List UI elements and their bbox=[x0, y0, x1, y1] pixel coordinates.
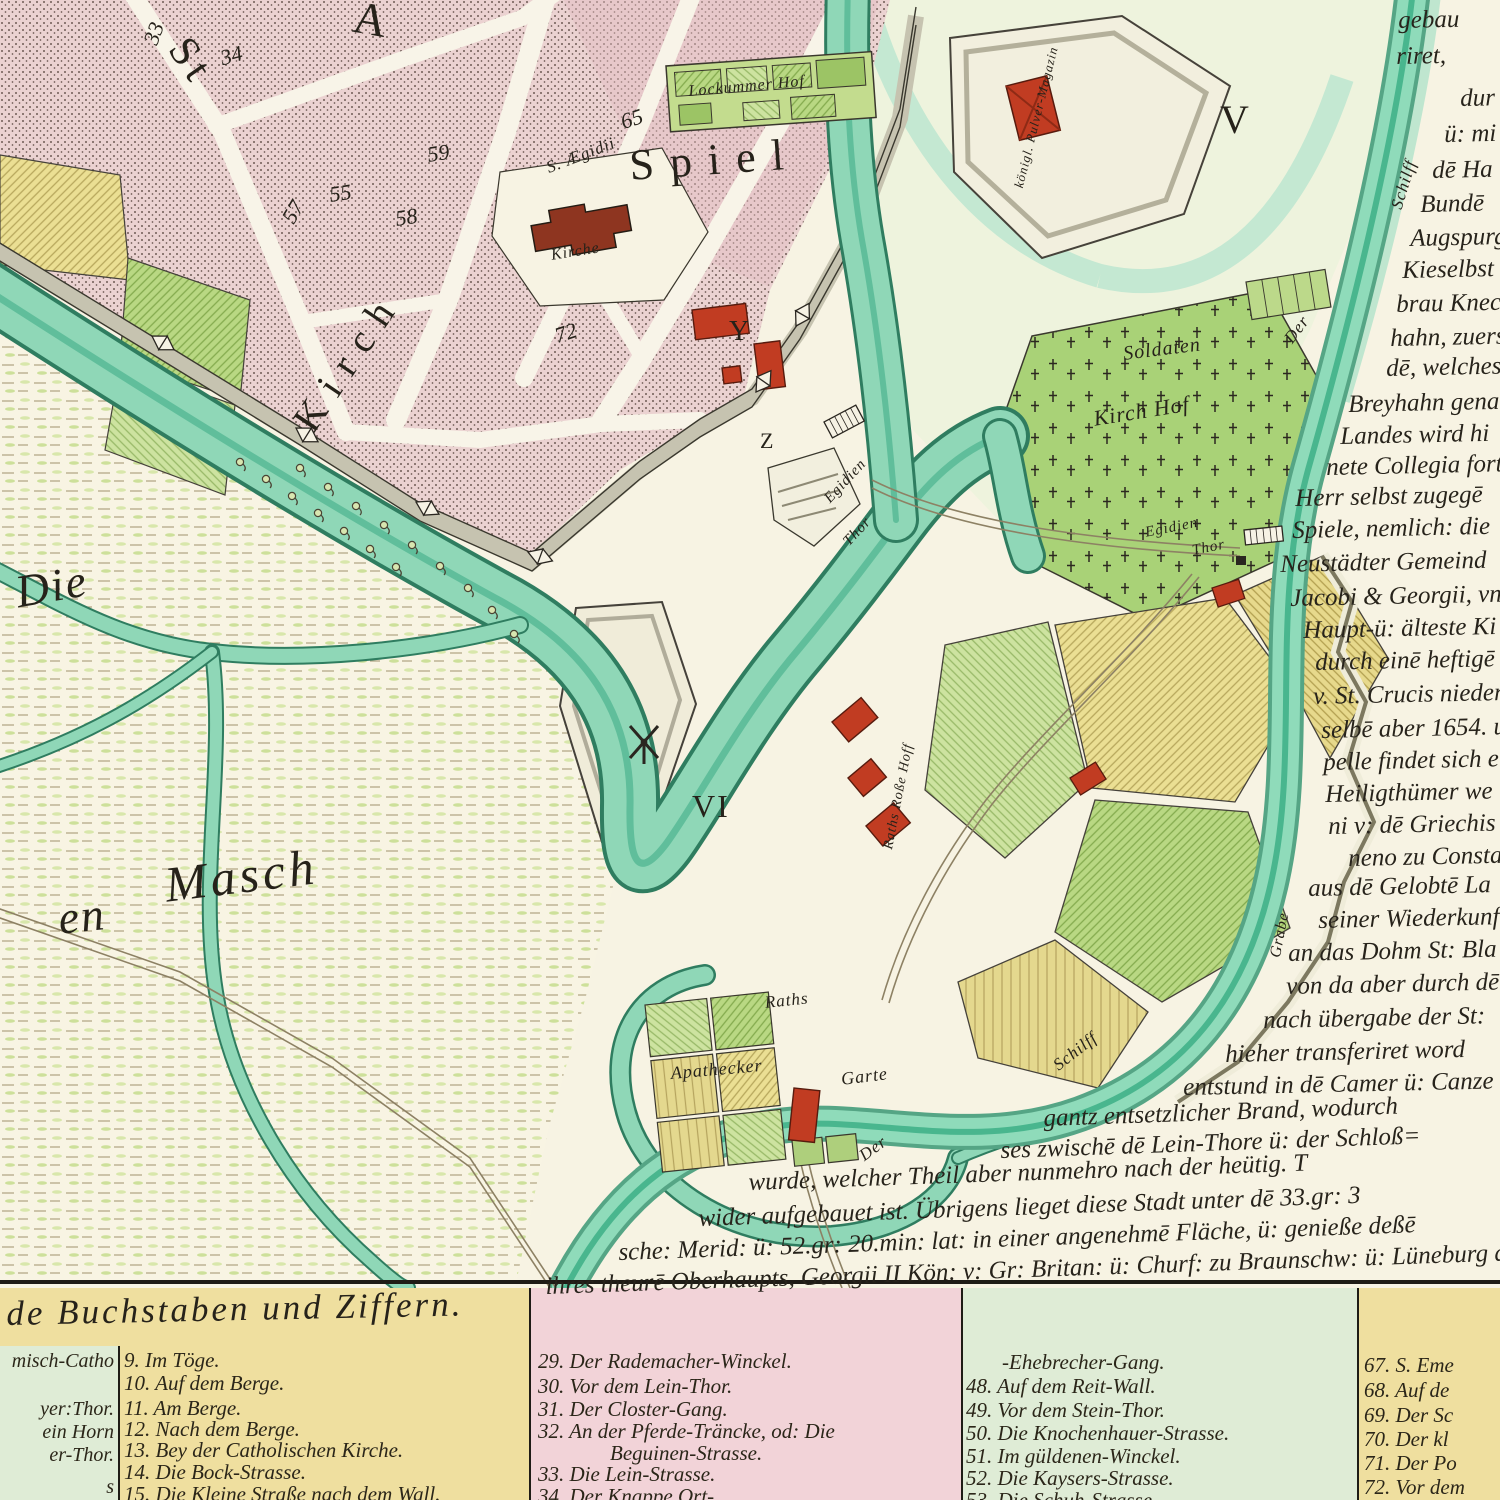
margin-text-line: neno zu Constanti bbox=[1348, 842, 1500, 871]
margin-text-line: riret, bbox=[1396, 43, 1446, 69]
legend-entry: -Ehebrecher-Gang. bbox=[1002, 1352, 1165, 1373]
margin-text-line: selbē aber 1654. u bbox=[1321, 714, 1500, 743]
margin-text-line: Haupt-ü: älteste Ki bbox=[1303, 614, 1497, 643]
legend-entry: 14. Die Bock-Strasse. bbox=[124, 1462, 306, 1483]
legend-entry: 52. Die Kaysers-Strasse. bbox=[966, 1468, 1174, 1489]
margin-text-line: Jacobi & Georgii, vn bbox=[1290, 582, 1500, 611]
legend-entry: 69. Der Sc bbox=[1364, 1405, 1453, 1426]
bastion-numeral-v: V bbox=[1220, 100, 1251, 140]
legend-entry: 72. Vor dem bbox=[1364, 1477, 1465, 1498]
margin-text-line: dē, welches, ih bbox=[1386, 353, 1500, 381]
margin-text-line: ü: mi bbox=[1444, 121, 1497, 147]
legend-entry: 32. An der Pferde-Träncke, od: Die bbox=[538, 1421, 835, 1442]
meadow-label-die: Die bbox=[12, 557, 91, 615]
bridge-icon-outer bbox=[1244, 526, 1283, 545]
legend-entry: 67. S. Eme bbox=[1364, 1355, 1454, 1376]
margin-text-line: dur bbox=[1460, 85, 1495, 111]
margin-text-line: nete Collegia forti bbox=[1326, 451, 1500, 480]
margin-text-line: gebau bbox=[1398, 7, 1460, 33]
legend-entry: yer:Thor. bbox=[40, 1399, 114, 1419]
margin-text-line: ni v: dē Griechis bbox=[1328, 810, 1496, 838]
legend-entry: er-Thor. bbox=[49, 1445, 114, 1465]
legend-entry: misch-Catho bbox=[12, 1351, 114, 1371]
margin-text-line: Breyhahn gena bbox=[1348, 389, 1500, 417]
legend-divider bbox=[118, 1346, 120, 1500]
legend-entry: Beguinen-Strasse. bbox=[610, 1443, 762, 1464]
street-number-55: 55 bbox=[328, 181, 353, 206]
bastion-numeral-vi: VI bbox=[692, 790, 730, 822]
margin-text-line: seiner Wiederkunft bbox=[1318, 904, 1500, 933]
margin-text-line: hahn, zuerst bbox=[1390, 323, 1500, 351]
margin-text-line: Landes wird hi bbox=[1340, 421, 1490, 449]
margin-text-line: Kieselbst is bbox=[1402, 256, 1500, 283]
margin-text-line: v. St. Crucis nieder bbox=[1313, 680, 1500, 709]
margin-text-line: nach übergabe der St: bbox=[1263, 1003, 1485, 1033]
street-number-59: 59 bbox=[426, 141, 451, 166]
building-letter-z: Z bbox=[760, 430, 773, 452]
legend-entry: 34. Der Knappe Ort- bbox=[538, 1486, 714, 1500]
legend-divider bbox=[529, 1288, 531, 1500]
legend-entry: 9. Im Töge. bbox=[124, 1350, 220, 1371]
legend-entry: 71. Der Po bbox=[1364, 1453, 1457, 1474]
margin-text-line: Spiele, nemlich: die bbox=[1292, 514, 1490, 543]
legend-entry: 15. Die Kleine Straße nach dem Wall. bbox=[124, 1484, 441, 1500]
margin-text-line: von da aber durch dē bbox=[1286, 970, 1499, 999]
margin-text-line: Bundē bbox=[1420, 191, 1484, 217]
legend-entry: 68. Auf de bbox=[1364, 1380, 1449, 1401]
margin-text-line: Herr selbst zugegē bbox=[1295, 482, 1483, 511]
margin-text-line: dē Ha bbox=[1432, 157, 1493, 183]
margin-text-line: Heiligthümer we bbox=[1325, 778, 1493, 806]
legend-entry: 29. Der Rademacher-Winckel. bbox=[538, 1351, 792, 1372]
legend-entry: 48. Auf dem Reit-Wall. bbox=[966, 1376, 1156, 1397]
meadow-label-en: en bbox=[56, 891, 108, 942]
legend-entry: s bbox=[106, 1477, 114, 1497]
street-name-spiel: Spiel bbox=[628, 132, 801, 188]
label-raths: Raths bbox=[764, 989, 809, 1010]
legend-entry: 49. Vor dem Stein-Thor. bbox=[966, 1400, 1165, 1421]
legend-entry: 13. Bey der Catholischen Kirche. bbox=[124, 1440, 403, 1461]
building-letter-y: Y bbox=[729, 318, 749, 346]
legend-entry: 11. Am Berge. bbox=[124, 1398, 241, 1419]
margin-text-line: Augspurg bbox=[1410, 224, 1500, 251]
legend-entry: 53. Die Schuh-Strasse bbox=[966, 1490, 1152, 1500]
legend-divider bbox=[1357, 1288, 1359, 1500]
margin-text-line: brau Knech bbox=[1396, 290, 1500, 317]
legend-entry: 31. Der Closter-Gang. bbox=[538, 1399, 728, 1420]
margin-text-line: durch einē heftigē bbox=[1315, 646, 1495, 675]
margin-text-line: aus dē Gelobtē La bbox=[1308, 872, 1491, 901]
map-sheet: de Buchstaben und Ziffern. StASpielKirch… bbox=[0, 0, 1500, 1500]
apothecary-building bbox=[789, 1088, 820, 1142]
margin-text-line: Neustädter Gemeind bbox=[1280, 548, 1487, 577]
legend-entry: 30. Vor dem Lein-Thor. bbox=[538, 1376, 732, 1397]
street-number-58: 58 bbox=[394, 205, 419, 230]
legend-entry: 50. Die Knochenhauer-Strasse. bbox=[966, 1423, 1229, 1444]
margin-text-line: pelle findet sich e bbox=[1323, 746, 1499, 775]
legend-divider bbox=[961, 1288, 963, 1500]
margin-text-line: an das Dohm St: Bla bbox=[1288, 937, 1497, 966]
legend-entry: 33. Die Lein-Strasse. bbox=[538, 1464, 715, 1485]
legend-entry: 70. Der kl bbox=[1364, 1429, 1449, 1450]
legend-entry: ein Horn bbox=[42, 1422, 114, 1442]
outer-gate-house bbox=[1236, 556, 1246, 565]
legend-entry: 51. Im güldenen-Winckel. bbox=[966, 1446, 1181, 1467]
legend-entry: 10. Auf dem Berge. bbox=[124, 1373, 284, 1394]
legend-entry: 12. Nach dem Berge. bbox=[124, 1419, 300, 1440]
margin-text-line: hieher transferiret word bbox=[1225, 1037, 1465, 1067]
